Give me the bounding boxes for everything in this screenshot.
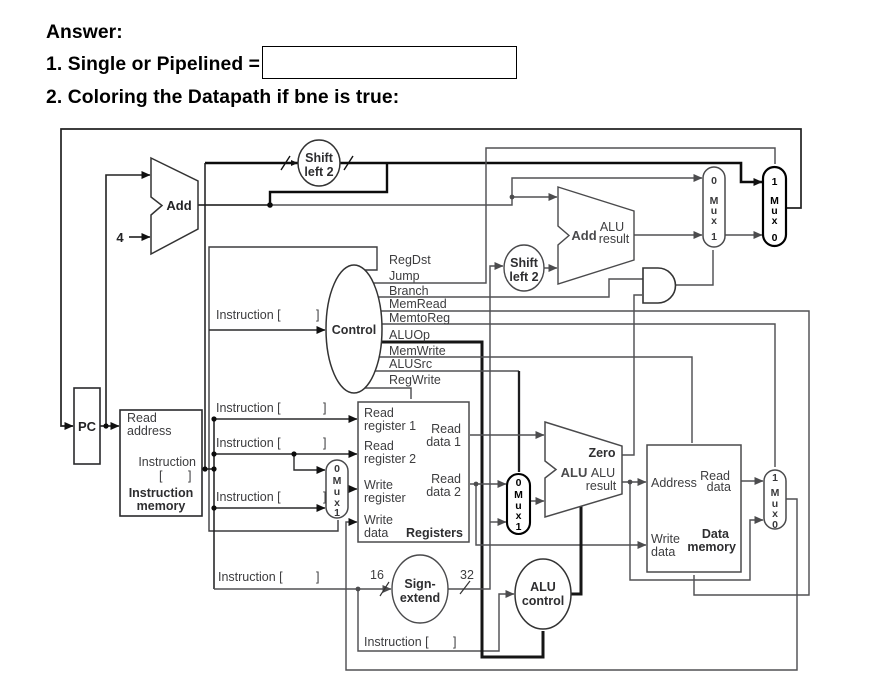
svg-text:data: data — [707, 480, 731, 494]
svg-text:Read: Read — [364, 439, 394, 453]
svg-text:data: data — [651, 545, 675, 559]
svg-text:Address: Address — [651, 476, 697, 490]
svg-text:Branch: Branch — [389, 284, 429, 298]
svg-text:16: 16 — [370, 568, 384, 582]
svg-text:MemRead: MemRead — [389, 297, 447, 311]
svg-text:]: ] — [188, 469, 191, 483]
svg-text:Jump: Jump — [389, 269, 420, 283]
svg-text:Shift: Shift — [305, 151, 334, 165]
svg-text:Control: Control — [332, 323, 376, 337]
svg-text:]: ] — [453, 635, 456, 649]
svg-text:1: 1 — [772, 176, 778, 188]
svg-text:MemWrite: MemWrite — [389, 344, 446, 358]
svg-text:RegWrite: RegWrite — [389, 373, 441, 387]
svg-text:ALU: ALU — [530, 580, 556, 594]
svg-text:data 2: data 2 — [426, 485, 461, 499]
svg-text:32: 32 — [460, 568, 474, 582]
svg-text:address: address — [127, 424, 171, 438]
svg-text:Add: Add — [571, 228, 596, 243]
svg-text:0: 0 — [516, 477, 522, 489]
svg-text:Add: Add — [166, 198, 191, 213]
svg-text:Instruction [: Instruction [ — [216, 490, 281, 504]
svg-text:register 1: register 1 — [364, 419, 416, 433]
svg-text:4: 4 — [116, 230, 124, 245]
svg-text:0: 0 — [711, 175, 717, 187]
svg-text:1: 1 — [516, 521, 522, 533]
svg-text:Instruction [: Instruction [ — [216, 308, 281, 322]
svg-text:0: 0 — [334, 463, 340, 475]
svg-text:Write: Write — [364, 478, 393, 492]
svg-text:extend: extend — [400, 591, 440, 605]
svg-text:Instruction [: Instruction [ — [218, 570, 283, 584]
svg-text:memory: memory — [137, 499, 186, 513]
svg-text:ALU: ALU — [561, 465, 588, 480]
svg-text:left 2: left 2 — [509, 270, 538, 284]
svg-text:Instruction: Instruction — [138, 455, 196, 469]
svg-text:RegDst: RegDst — [389, 253, 431, 267]
svg-text:x: x — [772, 215, 778, 227]
svg-text:Instruction [: Instruction [ — [216, 401, 281, 415]
svg-text:Instruction [: Instruction [ — [216, 436, 281, 450]
svg-text:]: ] — [323, 436, 326, 450]
svg-text:Registers: Registers — [406, 526, 463, 540]
svg-text:Read: Read — [431, 472, 461, 486]
svg-text:data: data — [364, 526, 388, 540]
svg-text:data 1: data 1 — [426, 435, 461, 449]
svg-text:register: register — [364, 491, 406, 505]
svg-text:1: 1 — [334, 507, 340, 519]
svg-text:result: result — [599, 232, 630, 246]
svg-text:Write: Write — [364, 513, 393, 527]
svg-text:ALUSrc: ALUSrc — [389, 357, 432, 371]
svg-text:Zero: Zero — [588, 446, 615, 460]
svg-text:0: 0 — [772, 232, 778, 244]
svg-text:Data: Data — [702, 527, 730, 541]
svg-text:left 2: left 2 — [304, 165, 333, 179]
svg-text:1: 1 — [711, 231, 717, 243]
svg-text:Write: Write — [651, 532, 680, 546]
svg-text:Read: Read — [127, 411, 157, 425]
svg-text:0: 0 — [772, 519, 778, 531]
svg-text:ALU: ALU — [591, 466, 615, 480]
svg-text:]: ] — [316, 308, 319, 322]
svg-text:Sign-: Sign- — [404, 577, 435, 591]
svg-text:result: result — [586, 479, 617, 493]
svg-text:ALUOp: ALUOp — [389, 328, 430, 342]
svg-text:Read: Read — [431, 422, 461, 436]
svg-text:]: ] — [316, 570, 319, 584]
svg-text:register 2: register 2 — [364, 452, 416, 466]
svg-text:x: x — [711, 215, 717, 227]
svg-text:Shift: Shift — [510, 256, 539, 270]
svg-text:Instruction [: Instruction [ — [364, 635, 429, 649]
svg-text:memory: memory — [687, 540, 736, 554]
svg-text:PC: PC — [78, 419, 97, 434]
svg-text:1: 1 — [772, 472, 778, 484]
svg-text:]: ] — [323, 401, 326, 415]
svg-text:control: control — [522, 594, 564, 608]
svg-text:Read: Read — [364, 406, 394, 420]
svg-text:]: ] — [323, 490, 326, 504]
svg-text:[: [ — [159, 469, 163, 483]
svg-text:MemtoReg: MemtoReg — [389, 311, 450, 325]
svg-text:Instruction: Instruction — [129, 486, 194, 500]
